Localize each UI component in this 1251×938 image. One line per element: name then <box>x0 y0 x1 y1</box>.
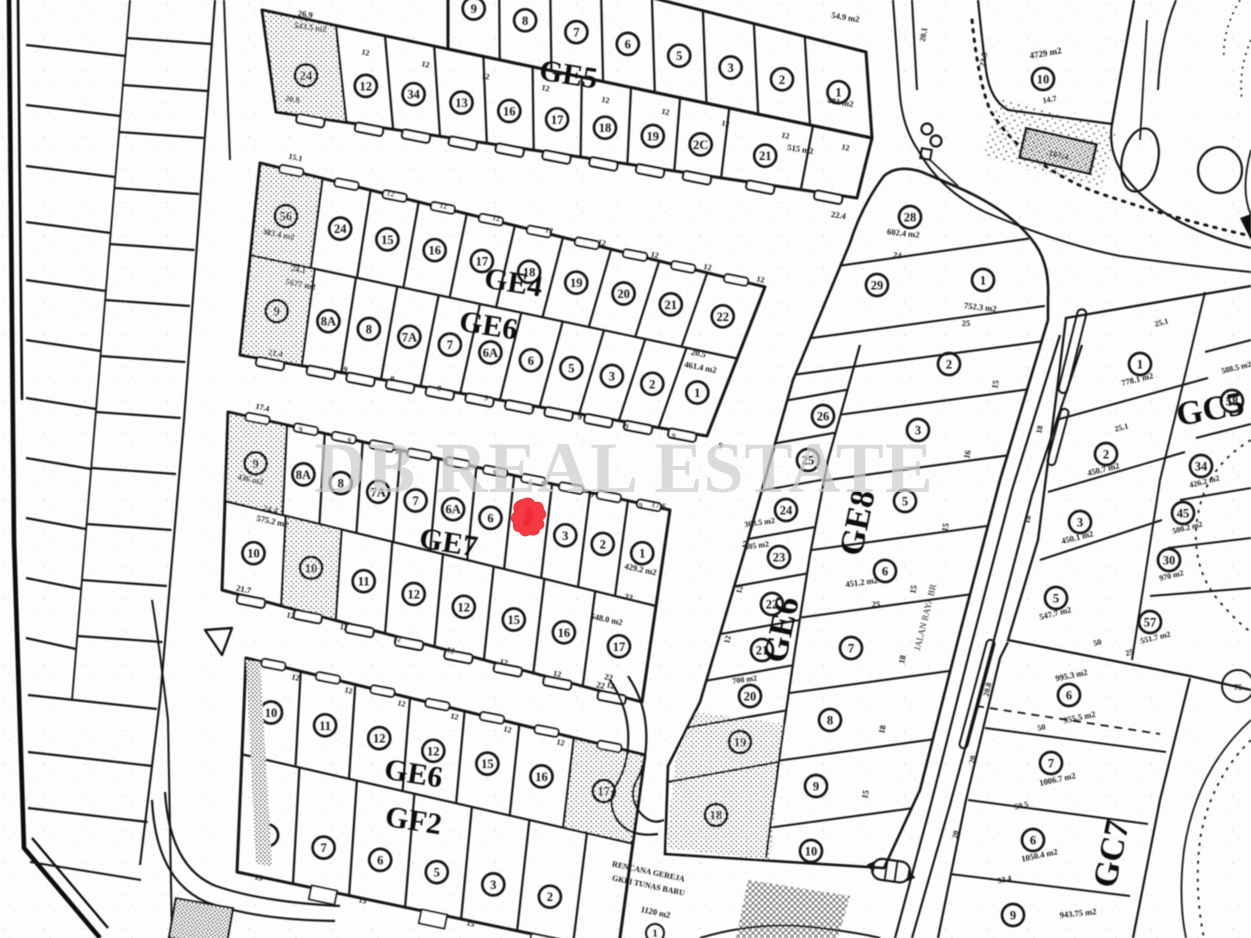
svg-text:DB REAL ESTATE: DB REAL ESTATE <box>314 428 934 508</box>
